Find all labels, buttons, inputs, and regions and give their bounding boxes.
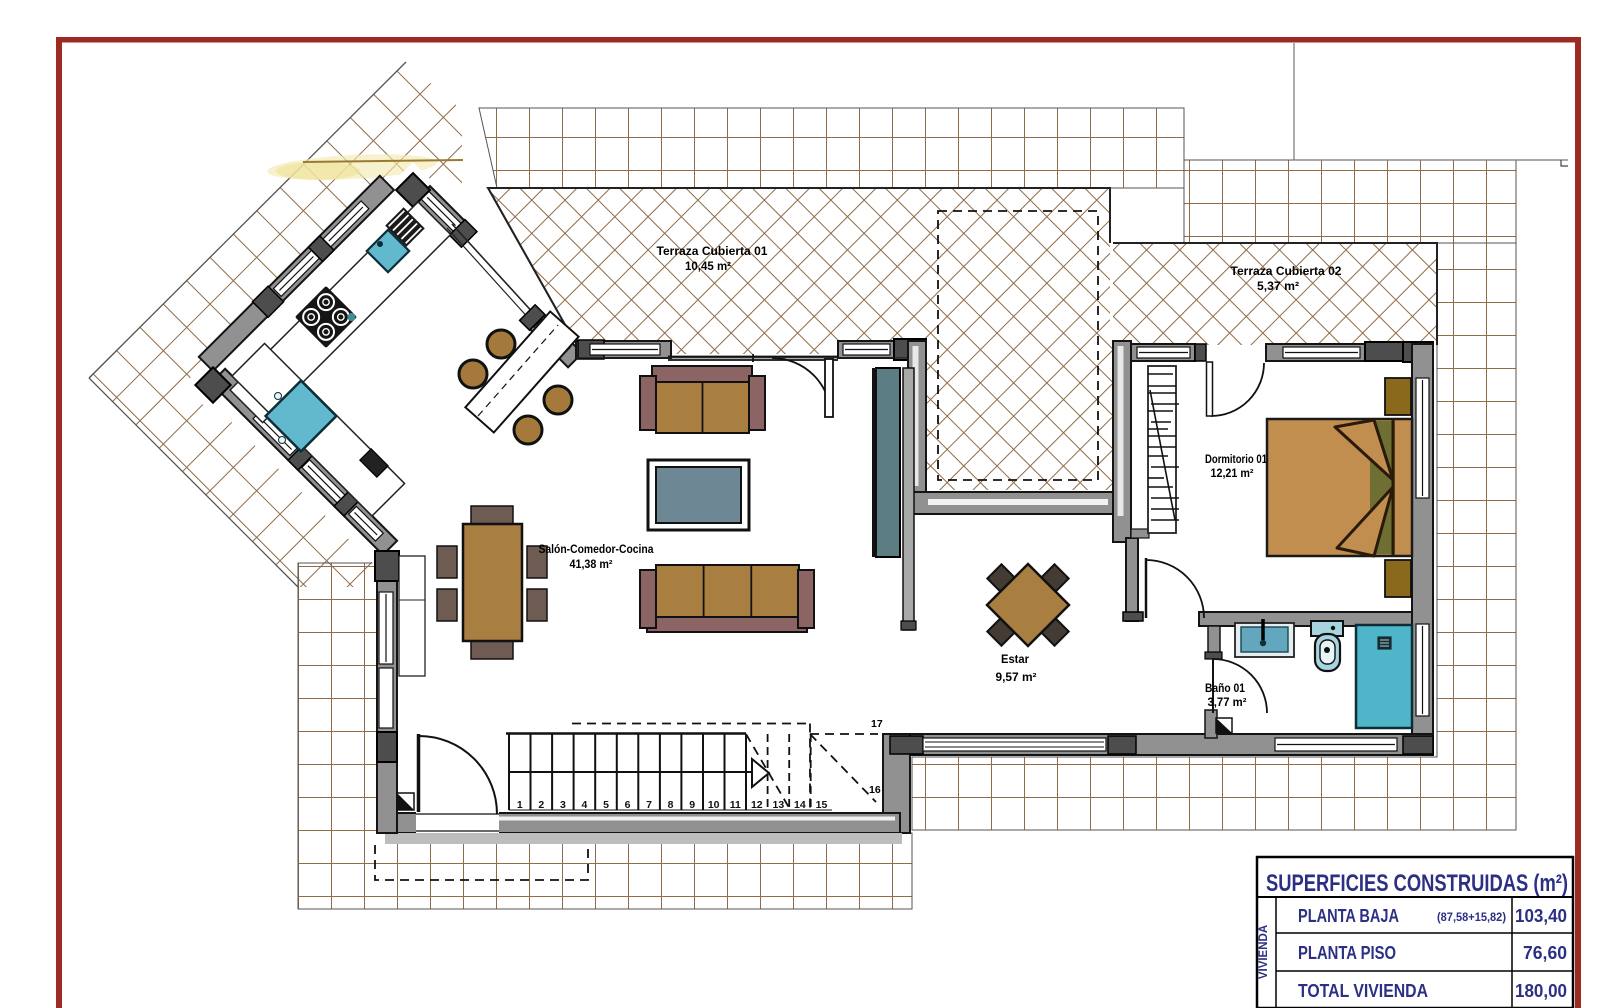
svg-text:7: 7 (646, 799, 652, 811)
svg-text:4: 4 (581, 799, 587, 811)
svg-text:Terraza Cubierta 01: Terraza Cubierta 01 (657, 244, 768, 258)
svg-text:1: 1 (517, 799, 523, 811)
svg-text:5,37 m²: 5,37 m² (1257, 279, 1299, 293)
svg-text:15: 15 (816, 799, 828, 811)
svg-text:17: 17 (871, 718, 883, 730)
svg-text:3: 3 (560, 799, 566, 811)
svg-text:14: 14 (794, 799, 806, 811)
svg-text:16: 16 (869, 784, 881, 796)
svg-text:9: 9 (689, 799, 695, 811)
svg-text:41,38 m²: 41,38 m² (570, 559, 613, 571)
svg-text:(87,58+15,82): (87,58+15,82) (1437, 912, 1506, 924)
svg-text:12: 12 (751, 799, 763, 811)
svg-text:PLANTA PISO: PLANTA PISO (1298, 943, 1396, 963)
svg-text:11: 11 (730, 799, 741, 811)
svg-text:10,45 m²: 10,45 m² (685, 259, 731, 273)
svg-text:180,00: 180,00 (1515, 981, 1567, 1001)
svg-text:2: 2 (538, 799, 544, 811)
svg-text:TOTAL VIVIENDA: TOTAL VIVIENDA (1298, 981, 1428, 1001)
svg-text:6: 6 (625, 799, 631, 811)
svg-text:Baño 01: Baño 01 (1205, 683, 1246, 695)
svg-text:9,57 m²: 9,57 m² (996, 672, 1037, 684)
svg-text:SUPERFICIES CONSTRUIDAS (m²): SUPERFICIES CONSTRUIDAS (m²) (1266, 870, 1568, 897)
svg-text:12,21 m²: 12,21 m² (1211, 468, 1254, 480)
svg-text:10: 10 (708, 799, 720, 811)
svg-text:8: 8 (668, 799, 674, 811)
svg-text:VIVIENDA: VIVIENDA (1258, 925, 1270, 979)
svg-text:103,40: 103,40 (1515, 906, 1567, 926)
svg-text:3,77 m²: 3,77 m² (1208, 697, 1247, 709)
svg-text:76,60: 76,60 (1523, 943, 1567, 963)
svg-text:13: 13 (773, 799, 785, 811)
svg-text:Dormitorio 01: Dormitorio 01 (1205, 454, 1267, 466)
svg-text:PLANTA BAJA: PLANTA BAJA (1298, 906, 1399, 926)
svg-text:Terraza Cubierta 02: Terraza Cubierta 02 (1231, 264, 1342, 278)
svg-text:Estar: Estar (1001, 654, 1029, 666)
svg-text:Salón-Comedor-Cocina: Salón-Comedor-Cocina (539, 544, 655, 556)
svg-text:5: 5 (603, 799, 609, 811)
